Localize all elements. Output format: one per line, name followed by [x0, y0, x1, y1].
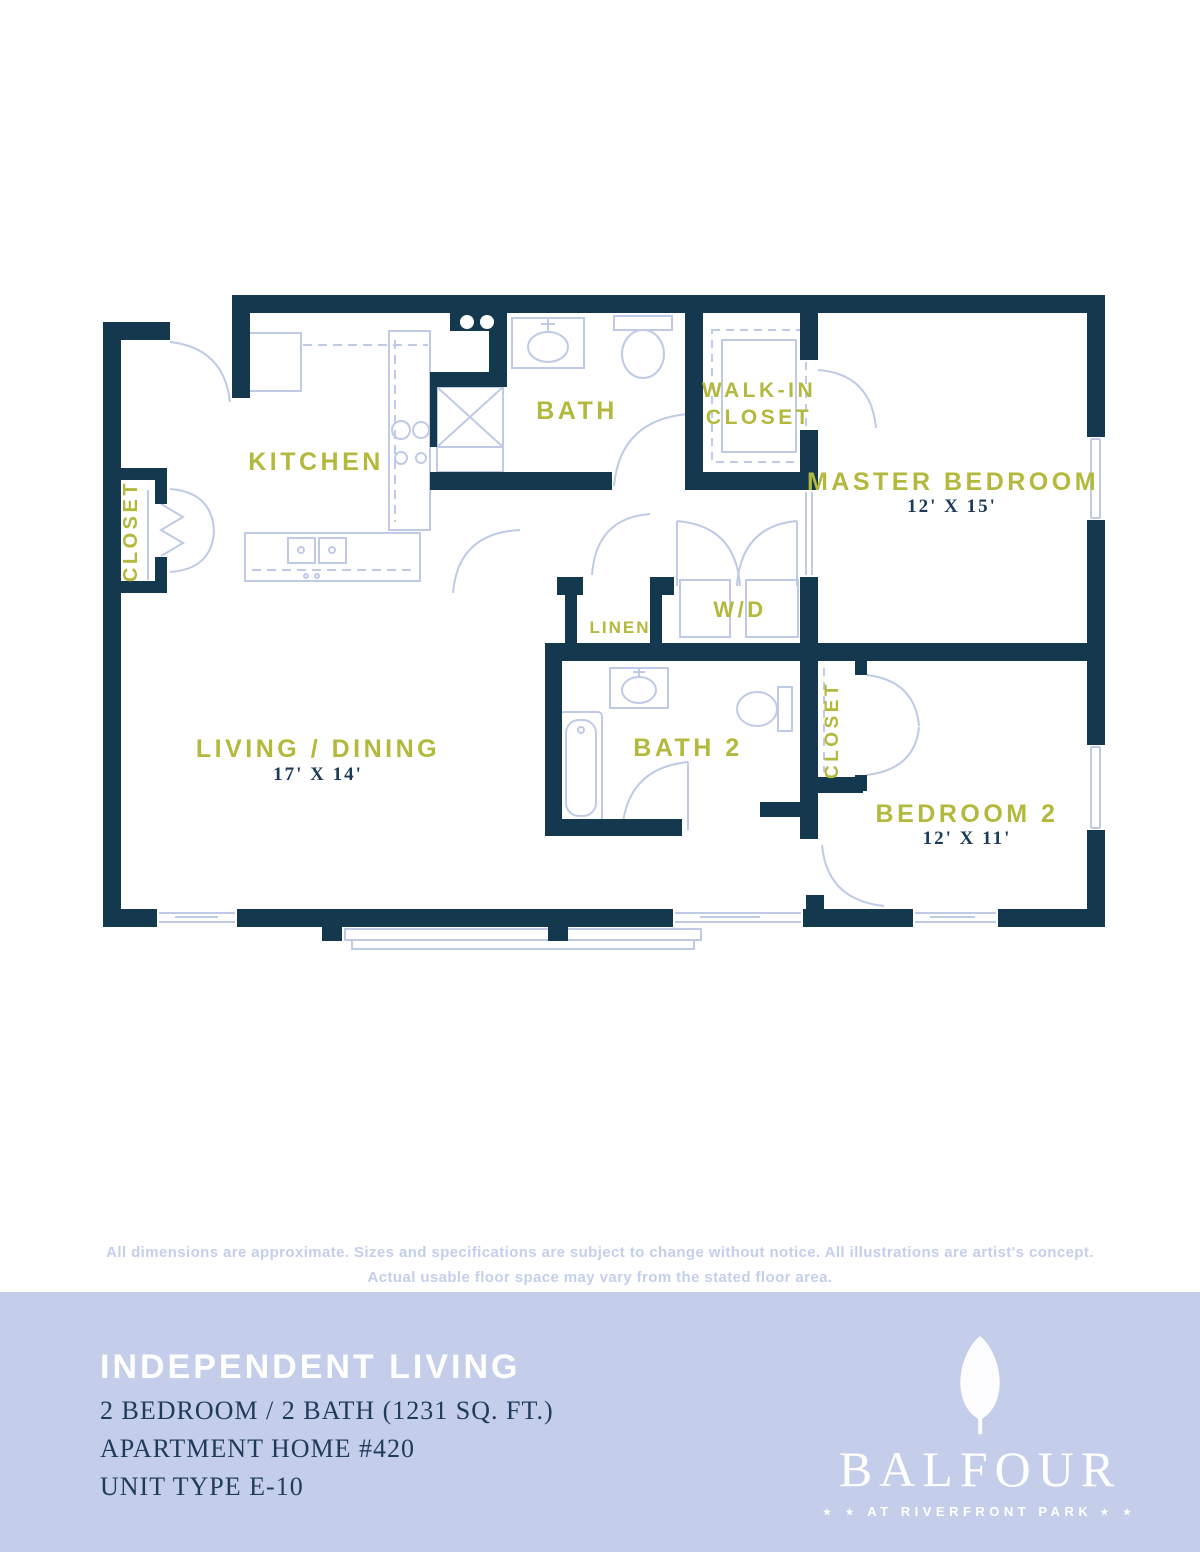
label-bath2: BATH 2 [633, 734, 742, 762]
patio-door [345, 929, 701, 940]
disclaimer-line2: Actual usable floor space may vary from … [0, 1265, 1200, 1290]
bath2-toilet-tank [778, 687, 792, 731]
window [913, 909, 998, 927]
floorplan-drawing: KITCHEN BATH WALK-IN CLOSET MASTER BEDRO… [0, 0, 1200, 1240]
label-closet2: CLOSET [822, 681, 843, 779]
label-bedroom2-dims: 12' X 11' [923, 828, 1012, 849]
stove-burner [416, 453, 426, 463]
label-walkin-1: WALK-IN [702, 379, 816, 402]
bath-toilet-tank [614, 316, 672, 330]
label-entry-closet: CLOSET [120, 480, 142, 582]
bath2-toilet [737, 692, 777, 726]
brand-tagline: ★ ★ AT RIVERFRONT PARK ★ ★ [820, 1504, 1140, 1519]
patio-door [352, 940, 694, 949]
balfour-logo: BALFOUR ★ ★ AT RIVERFRONT PARK ★ ★ [820, 1336, 1140, 1519]
label-walkin-2: CLOSET [706, 406, 812, 429]
footer-heading: INDEPENDENT LIVING [100, 1348, 520, 1387]
bath2-sink [622, 677, 656, 703]
label-master-dims: 12' X 15' [907, 496, 997, 517]
kitchen-peninsula [245, 533, 420, 581]
label-linen: LINEN [590, 618, 651, 637]
footer-unit-specs: 2 BEDROOM / 2 BATH (1231 SQ. FT.) [100, 1396, 554, 1426]
fridge [243, 333, 301, 391]
tagline-text: AT RIVERFRONT PARK [867, 1504, 1092, 1519]
footer-apartment-number: APARTMENT HOME #420 [100, 1434, 415, 1464]
label-living-dims: 17' X 14' [273, 764, 363, 785]
label-master: MASTER BEDROOM [807, 468, 1099, 496]
label-bedroom2: BEDROOM 2 [876, 800, 1059, 828]
stove-burner [413, 422, 429, 438]
stove-burner [395, 452, 407, 464]
label-bath: BATH [536, 397, 618, 425]
tree-icon [948, 1336, 1012, 1436]
footer-unit-type: UNIT TYPE E-10 [100, 1472, 304, 1502]
disclaimer: All dimensions are approximate. Sizes an… [0, 1240, 1200, 1290]
bath-toilet [622, 330, 664, 378]
disclaimer-line1: All dimensions are approximate. Sizes an… [0, 1240, 1200, 1265]
room-labels: KITCHEN BATH WALK-IN CLOSET MASTER BEDRO… [120, 379, 1099, 849]
star-decoration: ★ ★ [823, 1507, 860, 1517]
window [673, 909, 803, 927]
label-living: LIVING / DINING [196, 735, 440, 763]
window [1087, 745, 1105, 830]
floorplan-page: KITCHEN BATH WALK-IN CLOSET MASTER BEDRO… [0, 0, 1200, 1552]
window [157, 909, 237, 927]
brand-name: BALFOUR [820, 1440, 1140, 1498]
label-wd: W/D [713, 597, 766, 622]
label-kitchen: KITCHEN [248, 448, 384, 476]
bath-sink [528, 332, 568, 362]
footer-band: INDEPENDENT LIVING 2 BEDROOM / 2 BATH (1… [0, 1292, 1200, 1552]
star-decoration: ★ ★ [1100, 1507, 1137, 1517]
